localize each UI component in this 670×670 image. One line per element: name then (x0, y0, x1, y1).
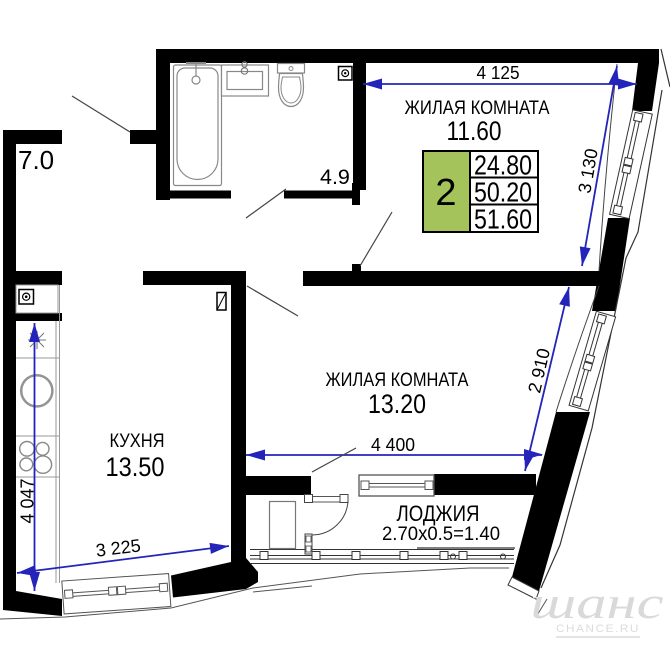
svg-text:ЖИЛАЯ КОМНАТА: ЖИЛАЯ КОМНАТА (326, 370, 469, 391)
svg-text:13.50: 13.50 (106, 452, 165, 482)
svg-text:ЛОДЖИЯ: ЛОДЖИЯ (397, 501, 480, 526)
svg-text:КУХНЯ: КУХНЯ (110, 431, 165, 452)
svg-text:CHANCE.RU: CHANCE.RU (556, 623, 640, 635)
svg-text:2: 2 (435, 172, 456, 214)
svg-text:2.70х0.5=1.40: 2.70х0.5=1.40 (382, 524, 500, 545)
svg-text:51.60: 51.60 (474, 204, 532, 235)
svg-text:4 125: 4 125 (477, 63, 520, 83)
svg-text:4 400: 4 400 (371, 435, 415, 455)
svg-text:4 047: 4 047 (18, 478, 38, 523)
svg-text:11.60: 11.60 (447, 116, 502, 146)
svg-text:13.20: 13.20 (368, 389, 426, 419)
svg-text:4.9: 4.9 (320, 165, 350, 189)
svg-text:шанс: шанс (530, 577, 663, 628)
svg-text:7.0: 7.0 (18, 145, 54, 175)
